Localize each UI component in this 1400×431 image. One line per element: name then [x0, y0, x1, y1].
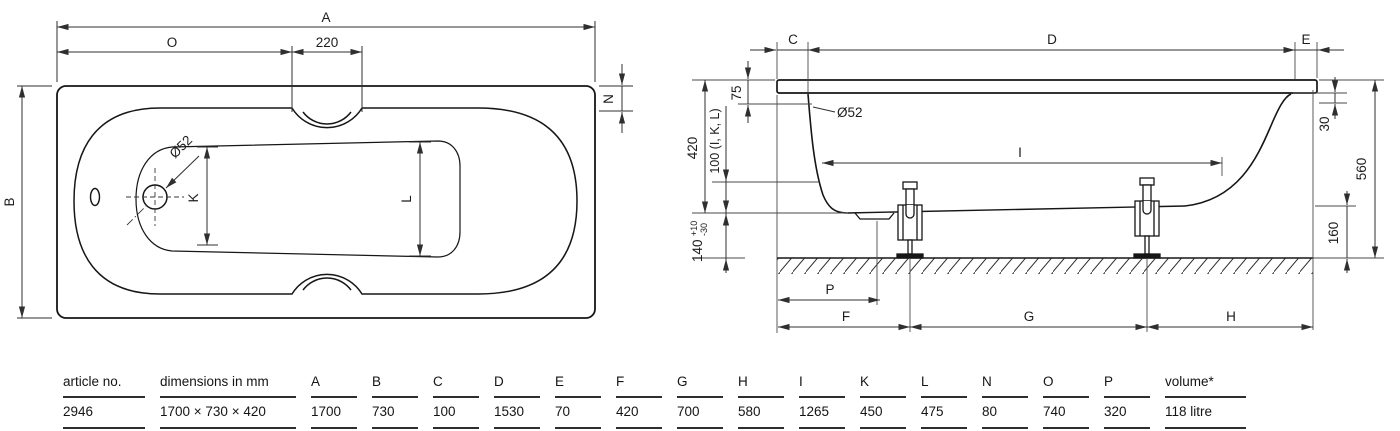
col-value: 475	[921, 398, 967, 429]
col-value: 450	[860, 398, 906, 429]
label-A: A	[321, 10, 330, 25]
label-P: P	[825, 282, 834, 297]
label-140-tol: 140 +10 -30	[689, 221, 709, 262]
table-col-I: I 1265	[799, 370, 860, 429]
table-col-E: E 70	[555, 370, 616, 429]
drain-leader	[166, 156, 199, 188]
table-col-D: D 1530	[494, 370, 555, 429]
label-drain-dia-plan: Ø52	[166, 132, 195, 161]
label-75: 75	[729, 85, 744, 100]
table-col-K: K 450	[860, 370, 921, 429]
col-value: 100	[433, 398, 479, 429]
label-L: L	[399, 195, 414, 203]
foot-screw	[1143, 185, 1151, 201]
label-220: 220	[316, 35, 339, 50]
adjustable-foot-rear	[1134, 178, 1160, 258]
table-col-C: C 100	[433, 370, 494, 429]
label-140-minus: -30	[699, 223, 709, 236]
label-K: K	[186, 193, 201, 202]
label-100-ref: 100 (I, K, L)	[708, 108, 722, 173]
foot-stem	[1145, 236, 1149, 254]
tub-rim-inner-contour	[74, 108, 577, 294]
col-value: 740	[1043, 398, 1089, 429]
label-F: F	[842, 309, 850, 324]
foot-stem	[908, 240, 912, 254]
col-value: 80	[982, 398, 1028, 429]
col-header: B	[372, 370, 418, 398]
tub-outer-outline	[57, 86, 595, 318]
table-col-P: P 320	[1104, 370, 1165, 429]
grip-arc-top-inner	[303, 112, 351, 124]
col-value: 700	[677, 398, 723, 429]
label-30: 30	[1317, 116, 1332, 131]
label-B: B	[2, 197, 17, 206]
col-header: P	[1104, 370, 1150, 398]
col-header: A	[311, 370, 357, 398]
col-header: volume*	[1165, 370, 1246, 398]
table-col-F: F 420	[616, 370, 677, 429]
col-header: G	[677, 370, 723, 398]
col-value: 2946	[63, 398, 145, 429]
table-col-B: B 730	[372, 370, 433, 429]
bathtub-spec-sheet: A O 220 B N K L Ø52	[0, 0, 1400, 431]
label-140-plus: +10	[689, 221, 699, 236]
right-wall-curve	[1185, 94, 1291, 206]
label-D: D	[1047, 32, 1057, 47]
col-header: N	[982, 370, 1028, 398]
label-E: E	[1301, 32, 1310, 47]
col-value: 420	[616, 398, 662, 429]
col-header: article no.	[63, 370, 145, 398]
col-value: 1700	[311, 398, 357, 429]
grip-arc-bottom-inner	[303, 278, 351, 290]
floor-hatching	[777, 259, 1313, 275]
col-value: 1700 × 730 × 420	[160, 398, 296, 429]
label-420: 420	[685, 137, 700, 160]
table-col-L: L 475	[921, 370, 982, 429]
label-drain-dia-side: Ø52	[837, 105, 863, 120]
col-value: 118 litre	[1165, 398, 1246, 429]
col-header: dimensions in mm	[160, 370, 296, 398]
foot-cap	[1140, 178, 1154, 185]
dimension-table: article no. 2946 dimensions in mm 1700 ×…	[63, 370, 1261, 429]
col-value: 580	[738, 398, 784, 429]
col-value: 320	[1104, 398, 1150, 429]
col-header: E	[555, 370, 601, 398]
label-O: O	[167, 35, 178, 50]
col-header: D	[494, 370, 540, 398]
label-I: I	[1018, 145, 1022, 160]
drain-leader-side	[813, 107, 835, 112]
label-G: G	[1024, 309, 1035, 324]
label-N: N	[601, 94, 616, 104]
side-view: C D E 75 420 100 (I, K, L) 140 +10 -30 Ø…	[685, 32, 1384, 333]
label-160: 160	[1326, 222, 1341, 245]
label-560: 560	[1354, 158, 1369, 181]
label-H: H	[1226, 309, 1236, 324]
col-header: O	[1043, 370, 1089, 398]
table-col-dimensions: dimensions in mm 1700 × 730 × 420	[160, 370, 311, 429]
table-col-volume: volume* 118 litre	[1165, 370, 1261, 429]
col-value: 1530	[494, 398, 540, 429]
plan-view: A O 220 B N K L Ø52	[2, 10, 633, 318]
label-C: C	[788, 32, 798, 47]
table-col-A: A 1700	[311, 370, 372, 429]
foot-screw	[906, 189, 914, 205]
col-header: L	[921, 370, 967, 398]
col-header: I	[799, 370, 845, 398]
rim-bar	[777, 80, 1317, 93]
adjustable-foot-front	[897, 182, 923, 258]
col-value: 1265	[799, 398, 845, 429]
col-value: 730	[372, 398, 418, 429]
col-header: H	[738, 370, 784, 398]
drain-recess	[855, 213, 894, 219]
overflow-hole	[91, 189, 100, 206]
table-col-N: N 80	[982, 370, 1043, 429]
table-col-O: O 740	[1043, 370, 1104, 429]
foot-cap	[903, 182, 917, 189]
col-header: K	[860, 370, 906, 398]
col-header: F	[616, 370, 662, 398]
col-value: 70	[555, 398, 601, 429]
label-140: 140	[690, 239, 705, 262]
col-header: C	[433, 370, 479, 398]
foot-slot	[906, 205, 914, 218]
table-col-G: G 700	[677, 370, 738, 429]
technical-drawing: A O 220 B N K L Ø52	[0, 0, 1400, 362]
foot-slot	[1143, 201, 1151, 214]
table-col-article: article no. 2946	[63, 370, 160, 429]
table-col-H: H 580	[738, 370, 799, 429]
